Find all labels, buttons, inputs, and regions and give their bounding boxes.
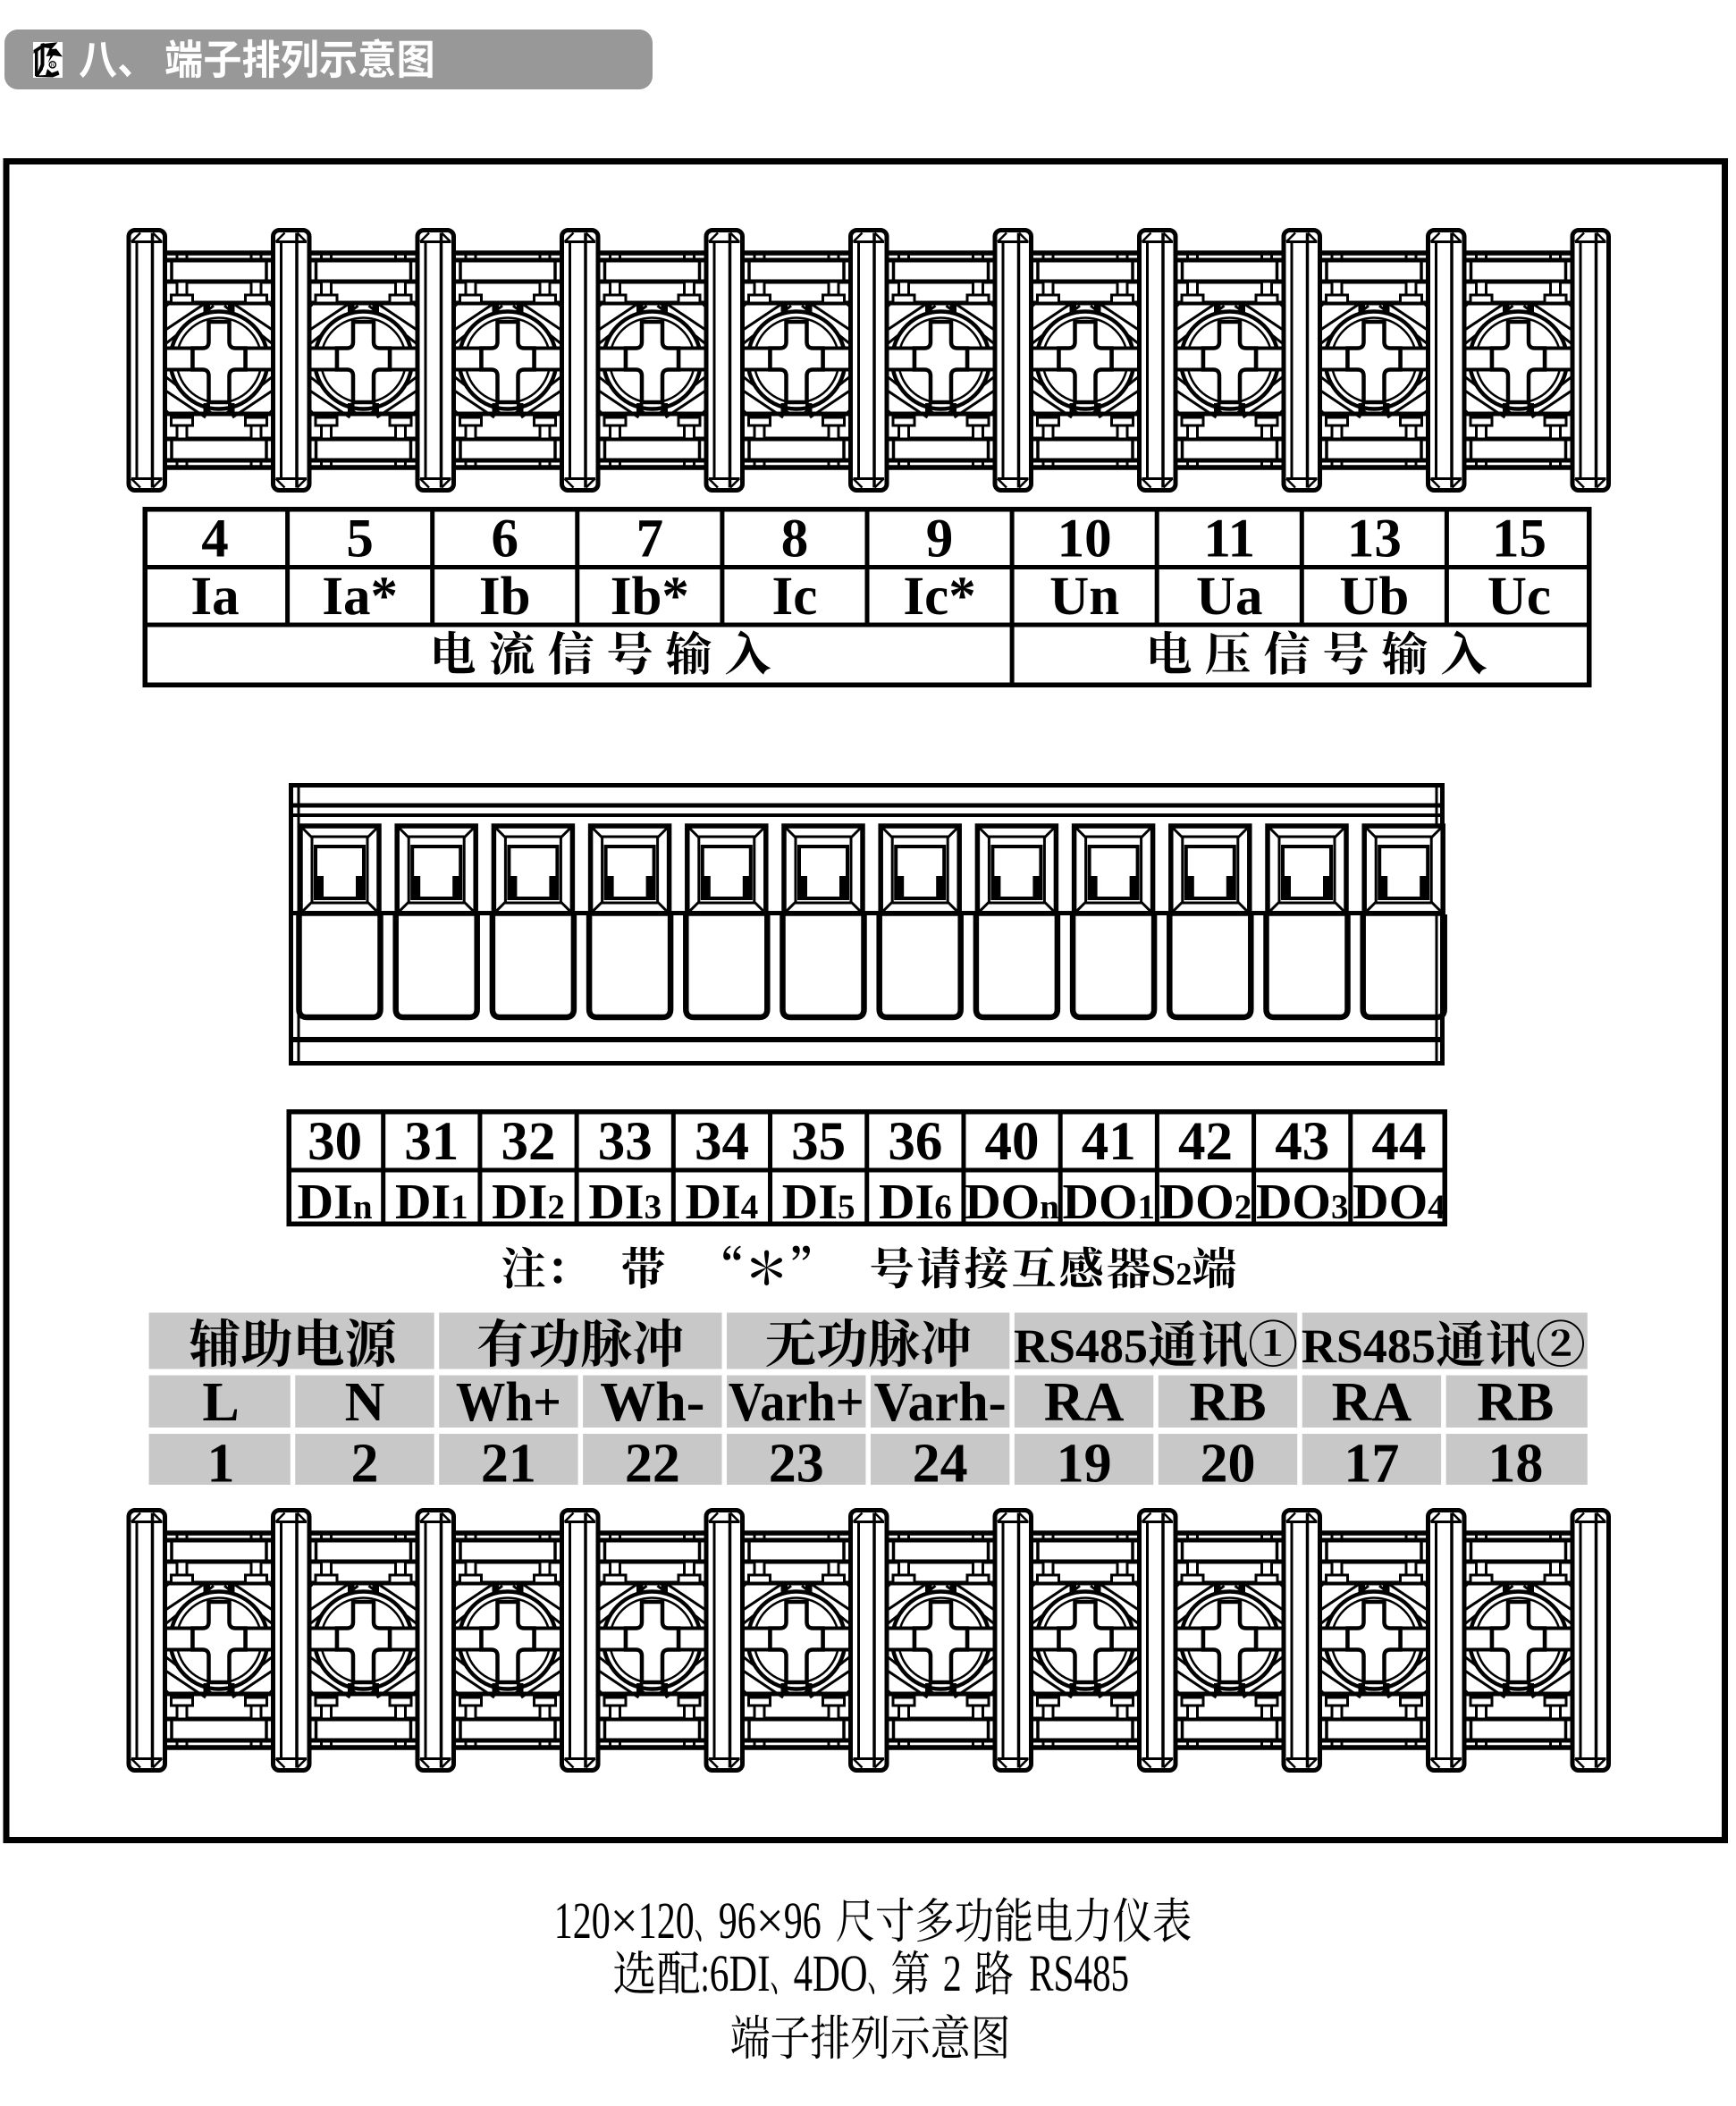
svg-text:RB: RB: [1477, 1372, 1554, 1433]
svg-text:1: 1: [207, 1434, 235, 1495]
svg-text:96: 96: [784, 1891, 822, 1950]
svg-text:8: 8: [781, 510, 809, 569]
svg-text:18: 18: [1487, 1434, 1543, 1495]
svg-text:Varh+: Varh+: [729, 1372, 864, 1433]
svg-text:5: 5: [346, 510, 374, 569]
svg-text:20: 20: [1201, 1434, 1256, 1495]
svg-text:RS485: RS485: [1029, 1944, 1129, 2002]
svg-text:RB: RB: [1189, 1372, 1266, 1433]
svg-text:×: ×: [756, 1891, 784, 1950]
svg-text:Uc: Uc: [1487, 567, 1551, 627]
svg-text:DI: DI: [879, 1175, 934, 1230]
svg-text:6: 6: [492, 510, 519, 569]
svg-text:19: 19: [1057, 1434, 1112, 1495]
svg-text:30: 30: [308, 1112, 362, 1172]
svg-text:41: 41: [1082, 1112, 1136, 1172]
svg-text:35: 35: [791, 1112, 846, 1172]
svg-text:4: 4: [741, 1188, 759, 1226]
svg-text:13: 13: [1347, 510, 1402, 569]
svg-text:34: 34: [695, 1112, 749, 1172]
svg-text:3: 3: [645, 1188, 662, 1226]
svg-text:7: 7: [636, 510, 664, 569]
svg-text:21: 21: [481, 1434, 536, 1495]
svg-text:Un: Un: [1049, 567, 1119, 627]
svg-text:RS485: RS485: [1302, 1319, 1436, 1373]
svg-text:4: 4: [1428, 1188, 1445, 1226]
svg-text:1: 1: [451, 1188, 468, 1226]
svg-text:23: 23: [769, 1434, 824, 1495]
svg-text:Ua: Ua: [1196, 567, 1263, 627]
svg-text:6DI: 6DI: [710, 1944, 771, 2002]
svg-text:n: n: [1040, 1188, 1059, 1226]
svg-text:42: 42: [1178, 1112, 1233, 1172]
svg-text:96: 96: [719, 1891, 756, 1950]
svg-text:Ic*: Ic*: [903, 567, 975, 627]
svg-text:Ia*: Ia*: [322, 567, 398, 627]
svg-text:DI: DI: [588, 1175, 644, 1230]
svg-text:DI: DI: [395, 1175, 451, 1230]
svg-text:×: ×: [611, 1891, 638, 1950]
svg-text:N: N: [345, 1372, 385, 1433]
svg-text:Wh-: Wh-: [600, 1372, 704, 1433]
svg-text:6: 6: [934, 1188, 952, 1226]
svg-text:S: S: [1151, 1244, 1176, 1294]
svg-text:120: 120: [638, 1891, 695, 1950]
svg-text::: :: [701, 1944, 710, 2002]
svg-text:17: 17: [1344, 1434, 1399, 1495]
svg-text:DO: DO: [965, 1175, 1040, 1230]
svg-text:33: 33: [598, 1112, 653, 1172]
svg-text:10: 10: [1058, 510, 1112, 569]
svg-text:DI: DI: [492, 1175, 547, 1230]
svg-text:Varh-: Varh-: [874, 1372, 1007, 1433]
svg-text:2: 2: [547, 1188, 565, 1226]
svg-text:DO: DO: [1063, 1175, 1138, 1230]
svg-text:Ub: Ub: [1339, 567, 1409, 627]
svg-text:3: 3: [1331, 1188, 1349, 1226]
svg-text:44: 44: [1371, 1112, 1426, 1172]
svg-text:24: 24: [913, 1434, 968, 1495]
svg-text:RA: RA: [1332, 1372, 1412, 1433]
svg-text:22: 22: [625, 1434, 680, 1495]
svg-text:1: 1: [1138, 1188, 1156, 1226]
svg-text:Ia: Ia: [190, 567, 239, 627]
svg-text:Ib: Ib: [479, 567, 531, 627]
svg-text:DO: DO: [1159, 1175, 1235, 1230]
svg-text:RA: RA: [1044, 1372, 1125, 1433]
svg-text:DI: DI: [782, 1175, 838, 1230]
svg-text:5: 5: [838, 1188, 855, 1226]
svg-text:40: 40: [985, 1112, 1040, 1172]
svg-text:2: 2: [1176, 1256, 1192, 1292]
svg-text:RS485: RS485: [1014, 1319, 1148, 1373]
svg-text:DI: DI: [686, 1175, 741, 1230]
svg-text:Wh+: Wh+: [456, 1372, 561, 1433]
svg-text:DO: DO: [1353, 1175, 1428, 1230]
svg-text:15: 15: [1492, 510, 1546, 569]
svg-text:11: 11: [1203, 510, 1255, 569]
svg-text:43: 43: [1275, 1112, 1329, 1172]
svg-text:31: 31: [404, 1112, 459, 1172]
svg-text:120: 120: [554, 1891, 611, 1950]
svg-text:DO: DO: [1256, 1175, 1331, 1230]
svg-text:9: 9: [926, 510, 954, 569]
svg-text:DI: DI: [298, 1175, 353, 1230]
svg-text:2: 2: [943, 1944, 962, 2002]
svg-text:R: R: [51, 63, 55, 69]
svg-text:2: 2: [1235, 1188, 1252, 1226]
svg-text:36: 36: [888, 1112, 942, 1172]
svg-text:2: 2: [350, 1434, 378, 1495]
svg-text:4DO: 4DO: [794, 1944, 868, 2002]
svg-text:32: 32: [501, 1112, 556, 1172]
svg-text:n: n: [353, 1188, 373, 1226]
svg-text:4: 4: [201, 510, 229, 569]
svg-text:Ib*: Ib*: [611, 567, 689, 627]
svg-text:L: L: [202, 1372, 239, 1433]
svg-text:Ic: Ic: [772, 567, 818, 627]
